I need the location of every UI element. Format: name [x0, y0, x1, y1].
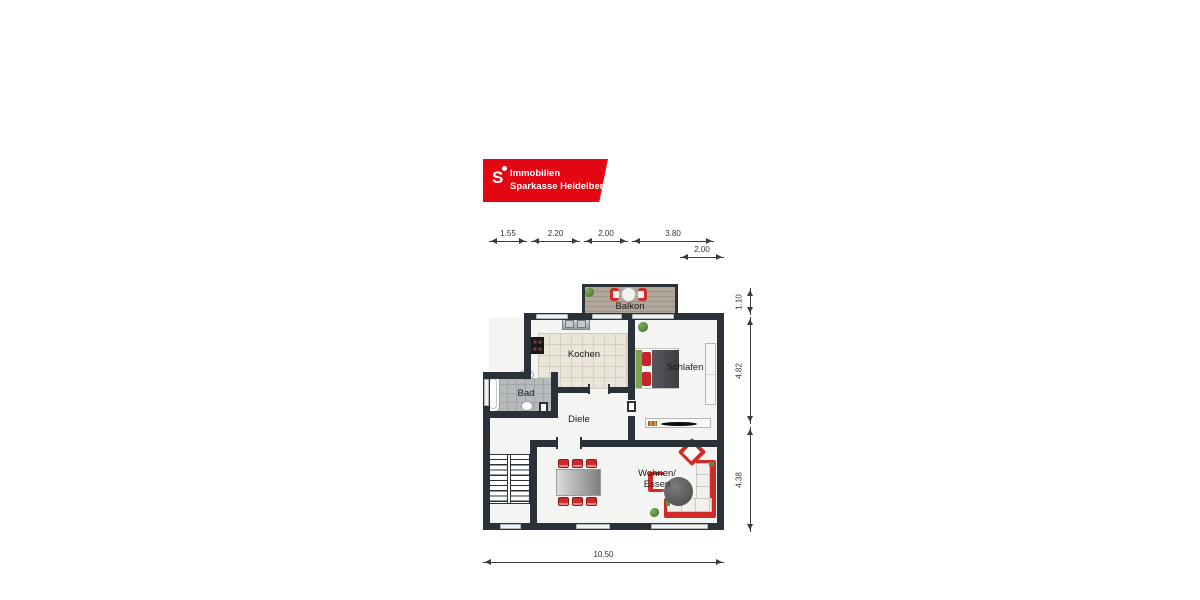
balcony-chair-left — [610, 288, 619, 301]
room-label-wohnen-essen: Wohnen/ Essen — [622, 468, 692, 490]
dimension-value: 10.50 — [593, 550, 613, 559]
balcony-wall-top — [582, 284, 678, 287]
balcony-door-bedroom — [632, 314, 674, 319]
staircase — [489, 454, 530, 504]
dining-chair — [558, 497, 569, 506]
logo-line1: Immobilien — [510, 168, 609, 181]
balcony-plant — [585, 288, 594, 297]
dimension-right-3: 4.38 — [750, 427, 751, 532]
dimension-value: 1.10 — [735, 294, 744, 310]
dimension-value: 4.82 — [735, 363, 744, 379]
window-kitchen — [536, 314, 568, 319]
logo-line2: Sparkasse Heidelberg — [510, 181, 609, 194]
dining-chair — [586, 459, 597, 468]
wall-hall-living-right — [581, 440, 717, 447]
bathroom-door — [539, 402, 548, 413]
door-frame-tick — [580, 437, 582, 449]
wardrobe — [705, 343, 716, 405]
dimension-value: 1.55 — [500, 229, 516, 238]
room-label-wohnen-line1: Wohnen/ — [622, 468, 692, 479]
dimension-bottom: 10.50 — [483, 562, 724, 563]
door-frame-tick — [608, 384, 610, 394]
window-living-right — [651, 524, 708, 529]
room-label-bad: Bad — [506, 388, 546, 399]
sparkasse-s-icon: S — [492, 166, 508, 192]
dining-chair — [572, 459, 583, 468]
dimension-top-2: 2.20 — [531, 241, 580, 242]
wall-kitchen-bottom-left — [558, 387, 590, 393]
dimension-top-4: 3.80 — [632, 241, 714, 242]
door-frame-tick — [588, 384, 590, 394]
bedroom-plant — [638, 322, 648, 332]
wall-bath-right — [551, 372, 558, 418]
dimension-value: 2.00 — [694, 245, 710, 254]
wall-stairwell — [530, 440, 537, 530]
sofa-accent — [709, 462, 714, 466]
stove — [531, 337, 544, 354]
dimension-top-offset: 2.00 — [680, 257, 724, 258]
window-living-left — [576, 524, 610, 529]
wall-hall-bedroom — [628, 416, 635, 443]
balcony-chair-right — [638, 288, 647, 301]
sparkasse-logo-banner: S Immobilien Sparkasse Heidelberg — [483, 159, 608, 202]
wall-kitchen-bottom-right — [610, 387, 628, 393]
door-frame-tick — [556, 437, 558, 449]
dining-table — [556, 469, 601, 496]
dimension-top-3: 2.00 — [584, 241, 628, 242]
sofa-right-section — [696, 460, 716, 502]
books — [648, 421, 657, 426]
dining-chair — [558, 459, 569, 468]
tv — [661, 422, 697, 426]
dimension-value: 2.20 — [548, 229, 564, 238]
room-label-wohnen-line2: Essen — [622, 479, 692, 490]
room-label-balkon: Balkon — [600, 301, 660, 312]
wall-right — [717, 313, 724, 530]
wall-left-upper — [524, 313, 531, 379]
dimension-value: 3.80 — [665, 229, 681, 238]
dimension-top-1: 1.55 — [489, 241, 527, 242]
logo-text: Immobilien Sparkasse Heidelberg — [510, 168, 609, 193]
dimension-value: 4.38 — [735, 472, 744, 488]
dining-chair — [572, 497, 583, 506]
bedroom-door — [627, 401, 636, 412]
balcony-door-kitchen — [592, 314, 622, 319]
living-room-plant — [650, 508, 659, 517]
balcony-table — [621, 287, 636, 302]
window-bathroom — [484, 379, 489, 406]
wall-bath-top — [483, 372, 531, 379]
floor-plan-page: S Immobilien Sparkasse Heidelberg — [0, 0, 1200, 600]
balcony-wall-left — [582, 284, 585, 313]
dimension-right-2: 4.82 — [750, 317, 751, 424]
dimension-value: 2.00 — [598, 229, 614, 238]
room-label-schlafen: Schlafen — [655, 362, 715, 373]
tv-sideboard — [645, 418, 711, 428]
room-label-kochen: Kochen — [554, 349, 614, 360]
room-label-diele: Diele — [549, 414, 609, 425]
window-stairwell — [500, 524, 521, 529]
toilet — [521, 401, 533, 411]
wall-kitchen-bedroom — [628, 320, 635, 400]
balcony-wall-right — [675, 284, 678, 313]
dimension-right-1: 1.10 — [750, 288, 751, 315]
dining-chair — [586, 497, 597, 506]
